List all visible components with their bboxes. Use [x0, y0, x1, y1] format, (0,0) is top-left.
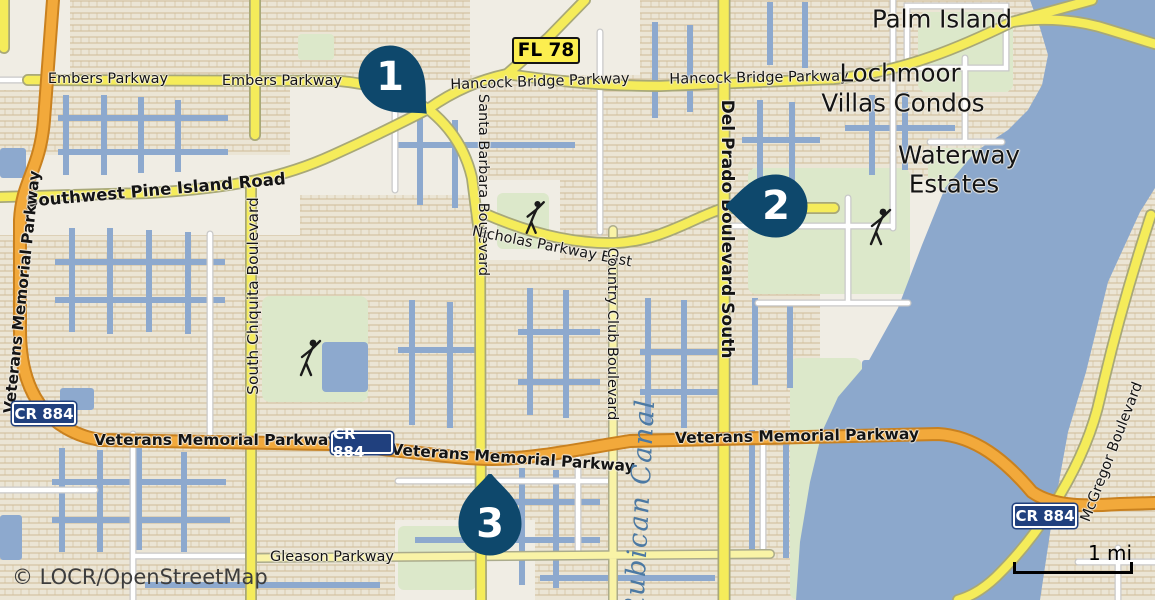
- road-label-hancock-bridge-2: Hancock Bridge Parkway: [669, 68, 849, 87]
- place-label-palm-island: Palm Island: [872, 5, 1012, 34]
- scale-bar-tick-left: [1013, 562, 1016, 574]
- route-shield-cr-884-east: CR 884: [1013, 504, 1077, 528]
- road-label-santa-barbara: Santa Barbara Boulevard: [475, 94, 491, 276]
- marker-2[interactable]: 2: [726, 156, 826, 256]
- road-label-south-chiquita: South Chiquita Boulevard: [244, 197, 262, 395]
- route-shield-fl-78: FL 78: [512, 37, 580, 64]
- scale-bar-line: [1013, 571, 1133, 574]
- scale-bar-tick-right: [1130, 562, 1133, 574]
- route-shield-cr-884-west: CR 884: [12, 402, 76, 425]
- map-canvas[interactable]: Embers Parkway Embers Parkway Hancock Br…: [0, 0, 1155, 600]
- place-label-waterway-line2: Estates: [909, 170, 999, 199]
- route-shield-cr-884-mid: CR 884: [331, 432, 393, 454]
- marker-1[interactable]: 1: [340, 27, 440, 127]
- map-attribution: © LOCR/OpenStreetMap: [12, 565, 268, 589]
- road-label-country-club: Country Club Boulevard: [604, 248, 620, 421]
- place-label-lochmoor-line2: Villas Condos: [821, 89, 984, 118]
- place-label-waterway-line1: Waterway: [898, 141, 1020, 170]
- road-label-embers-parkway-2: Embers Parkway: [222, 73, 342, 89]
- road-label-embers-parkway-1: Embers Parkway: [48, 71, 168, 87]
- road-label-gleason: Gleason Parkway: [270, 549, 394, 565]
- place-label-lochmoor-line1: Lochmoor: [839, 59, 960, 88]
- marker-3-number: 3: [476, 501, 504, 547]
- marker-1-number: 1: [376, 54, 404, 100]
- scale-bar-label: 1 mi: [1088, 541, 1132, 565]
- road-label-veterans-left: Veterans Memorial Parkway: [94, 431, 338, 449]
- marker-2-number: 2: [762, 183, 790, 229]
- marker-3[interactable]: 3: [440, 474, 540, 574]
